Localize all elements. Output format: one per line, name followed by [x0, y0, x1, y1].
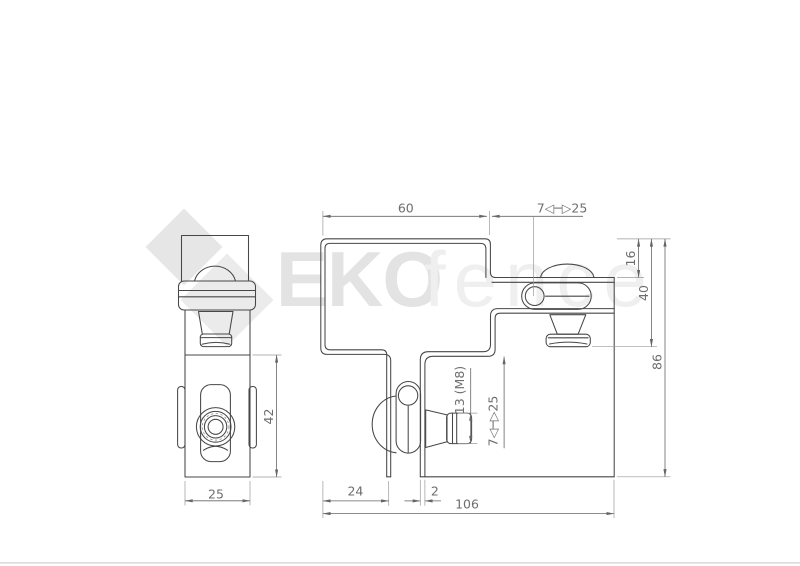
dim-label-top-width: 60	[398, 201, 414, 216]
watermark-text-bold: EKO	[276, 235, 442, 323]
dim-side-range: 7◁─▷25	[486, 357, 505, 449]
bolt-cap-arc	[550, 342, 587, 344]
dim-label-sheet-thickness: 2	[431, 483, 439, 498]
nut-knurl	[202, 414, 229, 441]
dim-side-width: 25	[185, 481, 250, 506]
dim-sheet-thickness: 2	[405, 480, 442, 506]
dim-label-mid-depth: 40	[636, 285, 651, 301]
technical-drawing: EKO fence 25 42	[0, 0, 800, 566]
dim-label-side-width: 25	[208, 487, 224, 502]
bolt-taper	[426, 410, 447, 448]
dim-label-side-range: 7◁─▷25	[486, 396, 501, 447]
bolt-cap	[546, 334, 590, 347]
flange-tab-left	[178, 387, 185, 449]
bolt-cap	[447, 413, 472, 444]
technical-drawing-page: EKO fence 25 42	[0, 0, 800, 566]
dim-label-side-height: 42	[261, 409, 276, 425]
dim-label-leg-offset: 24	[347, 483, 363, 498]
dim-top-width: 60	[323, 201, 490, 236]
clevis-hole	[398, 386, 417, 405]
dim-label-overall-width: 106	[455, 497, 479, 512]
dim-label-nut-size: 13 (M8)	[452, 366, 467, 414]
dim-label-top-offset: 16	[623, 251, 638, 267]
dim-leg-offset: 24	[323, 481, 389, 518]
dim-label-overall-height: 86	[650, 354, 665, 370]
dome	[372, 396, 396, 453]
dim-overall-width: 106	[323, 480, 614, 518]
extension-lines	[420, 480, 425, 506]
dim-nut-size: 13 (M8)	[452, 366, 477, 444]
dim-label-top-range: 7◁─▷25	[537, 201, 588, 216]
nut-hole	[208, 419, 223, 434]
bolt-cap-lines	[453, 413, 457, 443]
extension-lines	[458, 413, 477, 444]
strap-slot-arc	[204, 446, 228, 450]
